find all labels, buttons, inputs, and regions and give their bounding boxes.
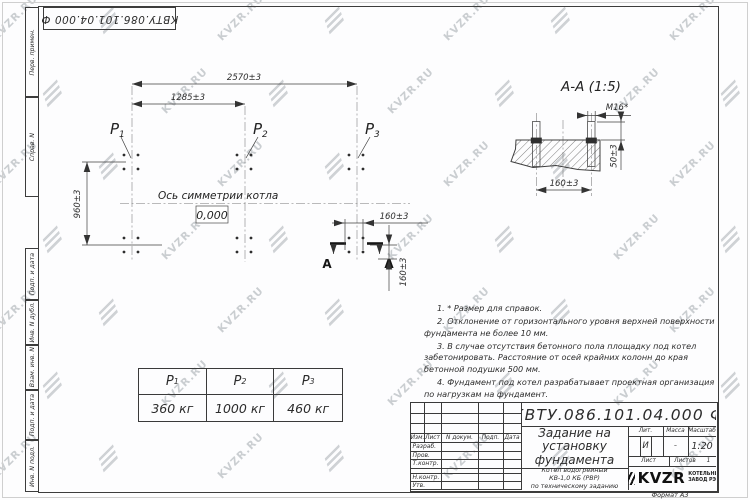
anchor-bolt-dot xyxy=(348,168,351,171)
anchor-bolt-dot xyxy=(348,154,351,157)
dim-text-160s: 160±3 xyxy=(550,179,579,189)
anchor-bolt-dot xyxy=(348,237,351,240)
anchor-bolt-dot xyxy=(123,154,126,157)
mass-value: – xyxy=(663,436,688,456)
drawing-sheet: KVZR.RUKVZR.RUKVZR.RUKVZR.RUKVZR.RUKVZR.… xyxy=(0,0,750,500)
bolt-base-2 xyxy=(586,138,597,144)
anchor-bolt-dot xyxy=(362,251,365,254)
section-view-a-a: А-А (1:5) M16* xyxy=(511,79,631,196)
anchor-bolt-dot xyxy=(236,154,239,157)
kvzr-logo-icon xyxy=(628,472,635,485)
anchor-bolt-dot xyxy=(348,251,351,254)
col-izm: Изм. xyxy=(411,433,424,442)
load-table-header-p3: P3 xyxy=(274,369,342,395)
row-prov: Пров. xyxy=(411,451,443,459)
col-list: Лист xyxy=(424,433,441,442)
doc-number: КВТУ.086.101.04.000 Ф xyxy=(521,403,716,426)
anchor-bolt-dot xyxy=(236,237,239,240)
note-3: 3. В случае отсутствия бетонного пола пл… xyxy=(424,341,726,376)
load-table-header-p2: P2 xyxy=(207,369,275,395)
note-4: 4. Фундамент под котел разрабатывает про… xyxy=(424,377,726,400)
anchor-bolt-dot xyxy=(123,168,126,171)
row-razrab: Разраб. xyxy=(411,442,443,451)
drawing-title: Задание на установку фундамента xyxy=(523,426,626,468)
section-title: А-А (1:5) xyxy=(560,79,621,95)
anchor-bolt-dot xyxy=(236,251,239,254)
lit-label: Лит. xyxy=(628,426,663,436)
drawing-subtitle: Котел водогрейный КВ-1,0 КБ (РВР) по тех… xyxy=(521,468,628,490)
load-label-p1: P1 xyxy=(110,120,125,140)
company-line-2: ЗАВОД РЭП xyxy=(688,478,716,484)
level-mark-value: 0,000 xyxy=(196,209,228,222)
sheets-value: 1 xyxy=(701,456,716,466)
load-value-p2: 1000 кг xyxy=(207,395,275,421)
concrete-foundation xyxy=(511,140,600,171)
col-podp: Подп. xyxy=(478,433,503,442)
title-block: Изм. Лист N докум. Подп. Дата Разраб. Пр… xyxy=(410,402,718,492)
scale-value: 1:20 xyxy=(688,436,716,456)
plan-view: 2570±3 1285±3 960±3 P1 P2 P3 Ось симметр… xyxy=(73,73,428,291)
col-data: Дата xyxy=(503,433,521,442)
sheet-label: Лист xyxy=(628,456,669,466)
anchor-bolt-dot xyxy=(137,168,140,171)
load-label-p2: P2 xyxy=(253,120,268,140)
company-name: KVZR xyxy=(638,469,686,487)
subtitle-line-1: Котел водогрейный xyxy=(541,468,607,475)
section-letter-left: А xyxy=(322,257,332,271)
lit-value: И xyxy=(640,436,651,456)
anchor-bolt-dot xyxy=(137,154,140,157)
col-ndokum: N докум. xyxy=(441,433,478,442)
load-value-p1: 360 кг xyxy=(139,395,207,421)
row-tkontr: Т.контр. xyxy=(411,459,443,468)
note-2: 2. Отклонение от горизонтального уровня … xyxy=(424,316,726,339)
dim-text-160h: 160±3 xyxy=(380,212,409,222)
row-nkontr: Н.контр. xyxy=(411,473,443,481)
subtitle-line-2: КВ-1,0 КБ (РВР) xyxy=(549,475,600,483)
row-utv: Утв. xyxy=(411,481,443,489)
format-label: Формат А3 xyxy=(600,491,740,499)
anchor-bolt-dot xyxy=(236,168,239,171)
load-table: P1 P2 P3 360 кг 1000 кг 460 кг xyxy=(138,368,343,422)
company-logo-row: KVZR КОТЕЛЬНЫЙ ЗАВОД РЭП xyxy=(628,466,716,490)
load-value-p3: 460 кг xyxy=(274,395,342,421)
anchor-bolt-dot xyxy=(250,154,253,157)
company-subtitle: КОТЕЛЬНЫЙ ЗАВОД РЭП xyxy=(688,472,716,483)
leader-p1 xyxy=(121,137,131,158)
dim-text-50: 50±3 xyxy=(610,144,620,167)
dim-text-2570: 2570±3 xyxy=(227,73,261,83)
anchor-bolt-dot xyxy=(123,237,126,240)
technical-notes: 1. * Размер для справок. 2. Отклонение о… xyxy=(424,303,726,402)
anchor-bolt-dot xyxy=(362,154,365,157)
thread-label: M16* xyxy=(606,103,628,113)
anchor-bolt-dot xyxy=(137,237,140,240)
bolt-base-1 xyxy=(531,138,542,144)
anchor-bolt-dot xyxy=(250,251,253,254)
sheets-label: Листов xyxy=(669,456,701,466)
note-1: 1. * Размер для справок. xyxy=(424,303,726,315)
anchor-bolt-dot xyxy=(123,251,126,254)
anchor-bolt-dot xyxy=(137,251,140,254)
anchor-bolt-dot xyxy=(362,168,365,171)
dim-text-1285: 1285±3 xyxy=(171,93,205,103)
dim-text-160v: 160±3 xyxy=(399,258,409,287)
load-table-header-p1: P1 xyxy=(139,369,207,395)
anchor-bolt-dot xyxy=(250,168,253,171)
dim-text-960: 960±3 xyxy=(73,190,83,219)
symmetry-axis-label: Ось симметрии котла xyxy=(158,190,278,202)
scale-label: Масштаб xyxy=(688,426,716,436)
mass-label: Масса xyxy=(663,426,688,436)
load-label-p3: P3 xyxy=(365,120,380,140)
subtitle-line-3: по техническому заданию xyxy=(531,483,619,490)
anchor-bolt-dot xyxy=(250,237,253,240)
